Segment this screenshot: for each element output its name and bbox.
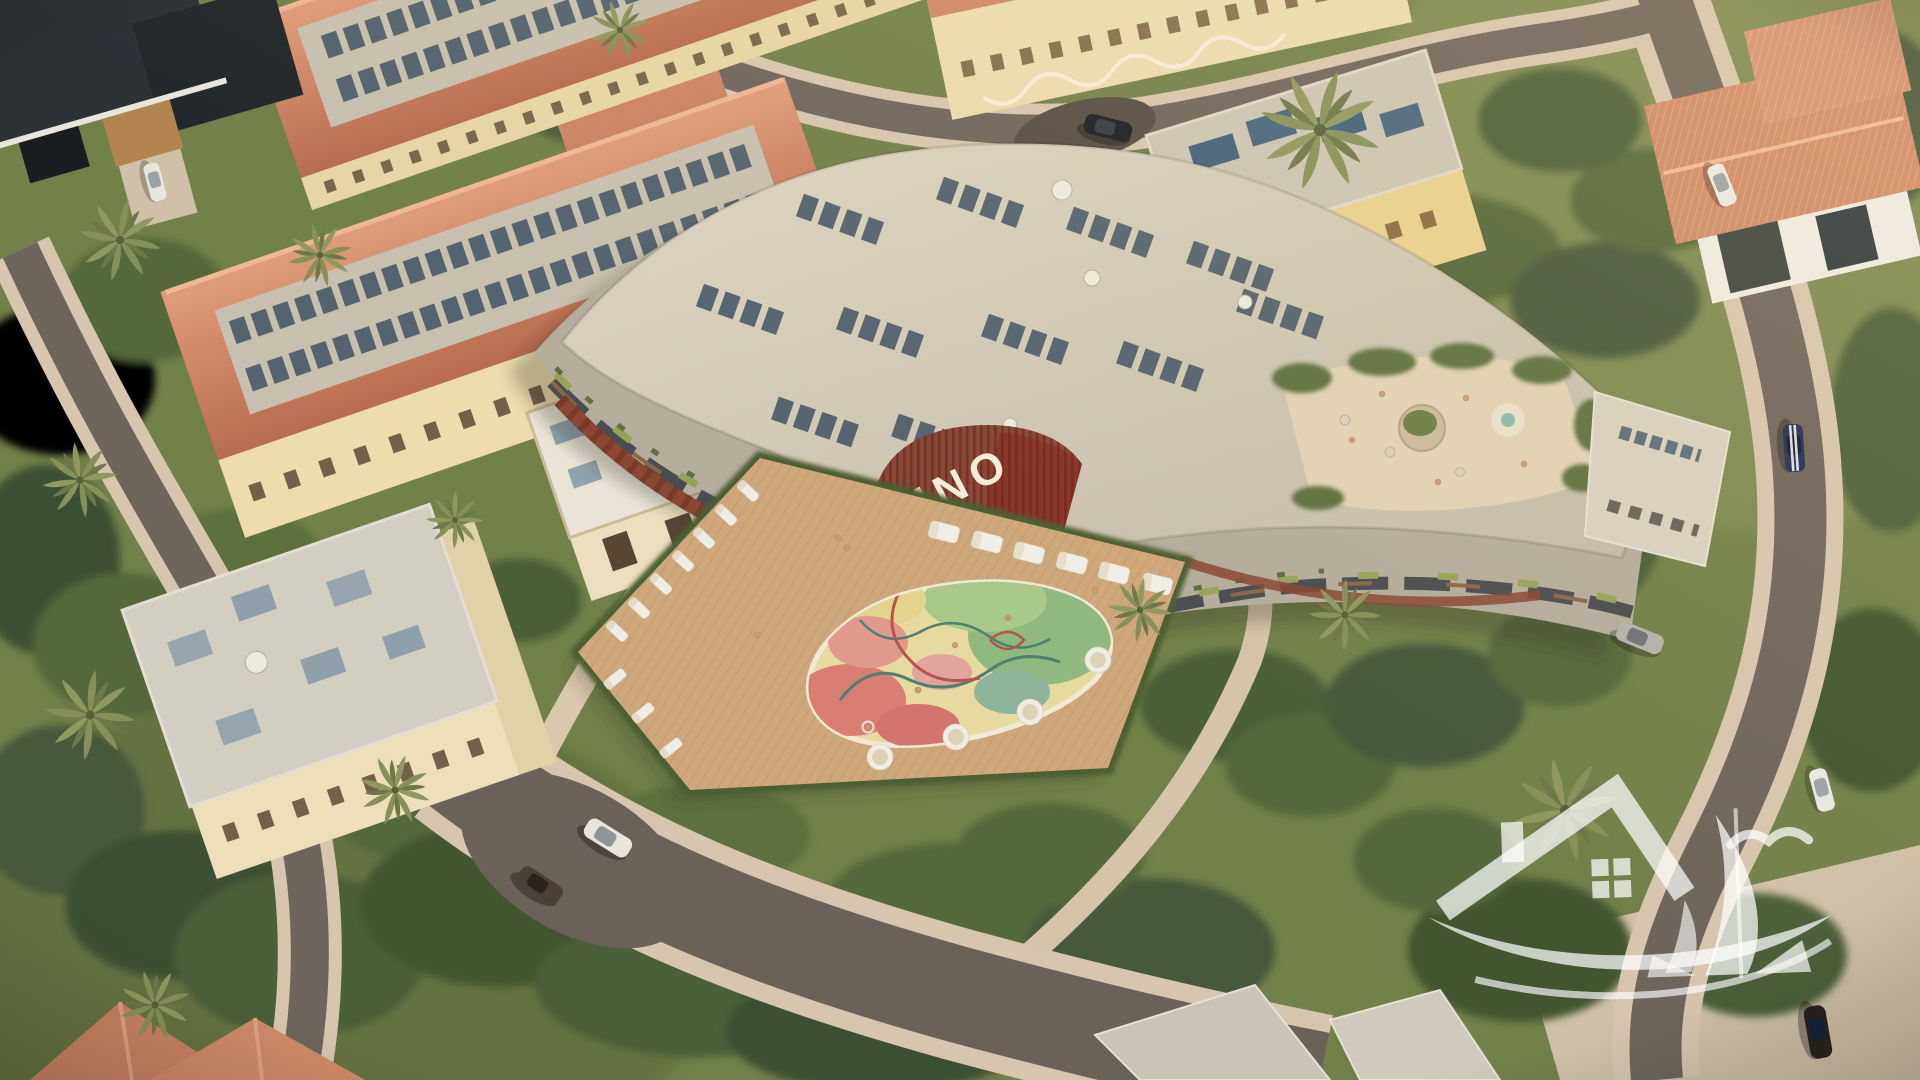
vignette [0,0,1920,1080]
scene-canvas: UNO [0,0,1920,1080]
aerial-render-scene: UNO [0,0,1920,1080]
